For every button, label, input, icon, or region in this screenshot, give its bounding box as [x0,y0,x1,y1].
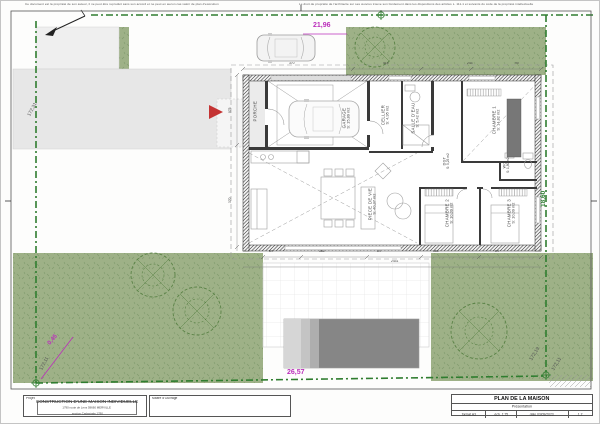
doc-scale: éch. 1:75 [494,413,508,416]
disclaimer-left: Ce document est la propriété de son aute… [25,3,219,6]
dim-top-1: 370 [289,62,295,65]
titleblock-owner: Maître d'Ouvrage [149,395,291,417]
neighbour-hatch [549,375,591,387]
dim-bottom-5: 84 [495,250,499,253]
project-label: Projet [26,397,35,400]
room-label-chambre1: CHAMBRE 1 S: 14,82 m2 [492,89,501,151]
site-dim-top: 21,96 [313,22,331,29]
dim-bottom-2: 363 [319,250,325,253]
dim-bottom-1: 84 [269,250,273,253]
room-label-piece-de-vie: PIECE DE VIE S: 40,37 m2 [368,173,377,235]
doc-date: date 03/09/2023 [530,413,554,416]
dim-left-1: 975 [229,107,232,113]
dim-total: 2431 [391,260,398,263]
site-dim-right: 18,60 [541,191,548,207]
drawing-sheet: Ce document est la propriété de son aute… [0,0,600,424]
street-car-icon [257,33,315,63]
room-label-dgt: DGT S: 5,25 m2 [443,135,451,187]
pool [284,319,419,368]
titleblock-project: Projet CONSTRUCTION D'UNE MAISON INDIVID… [23,395,147,417]
project-title: CONSTRUCTION D'UNE MAISON INDIVIDUELLE [36,400,138,405]
dim-top-4: 90 [515,62,519,65]
project-inner-box: CONSTRUCTION D'UNE MAISON INDIVIDUELLE 1… [37,401,137,415]
room-label-garage: GARAGE S: 15,89 m2 [342,87,351,149]
site-dim-bottom: 26,57 [287,369,305,376]
doc-title: PLAN DE LA MAISON [494,396,549,401]
dim-top-3: 243 [467,62,473,65]
doc-format: format A3 [462,413,476,416]
disclaimer-right: Le droit de propriété de l'architecte su… [299,3,533,6]
owner-label: Maître d'Ouvrage [152,397,177,400]
dim-top-2: 415 [383,62,389,65]
titleblock-doc: PLAN DE LA MAISON Présentation format A3… [451,394,593,416]
room-label-porche: PORCHE [253,80,258,142]
room-label-chambre3: CHAMBRE 3 S: 10,09 m2 [507,182,516,244]
project-address-1: 1790 route de Lens 59660 MERVILLE [63,407,112,410]
doc-index: 1.2 [578,413,583,416]
project-address-2: section Cadastrale 1790 [71,413,102,416]
dim-left-2: 370 [229,197,232,203]
room-label-chambre2: CHAMBRE 2 S: 10,09 m2 [445,182,454,244]
room-label-cellier: CELLIER S: 4,95 m2 [381,84,390,146]
dim-bottom-3: 84 [377,250,381,253]
doc-subtitle: Présentation [512,405,532,409]
dim-bottom-4: 363 [433,250,439,253]
room-label-salle-deau: SALLE D'EAU S: 5,42 m2 [411,87,420,149]
